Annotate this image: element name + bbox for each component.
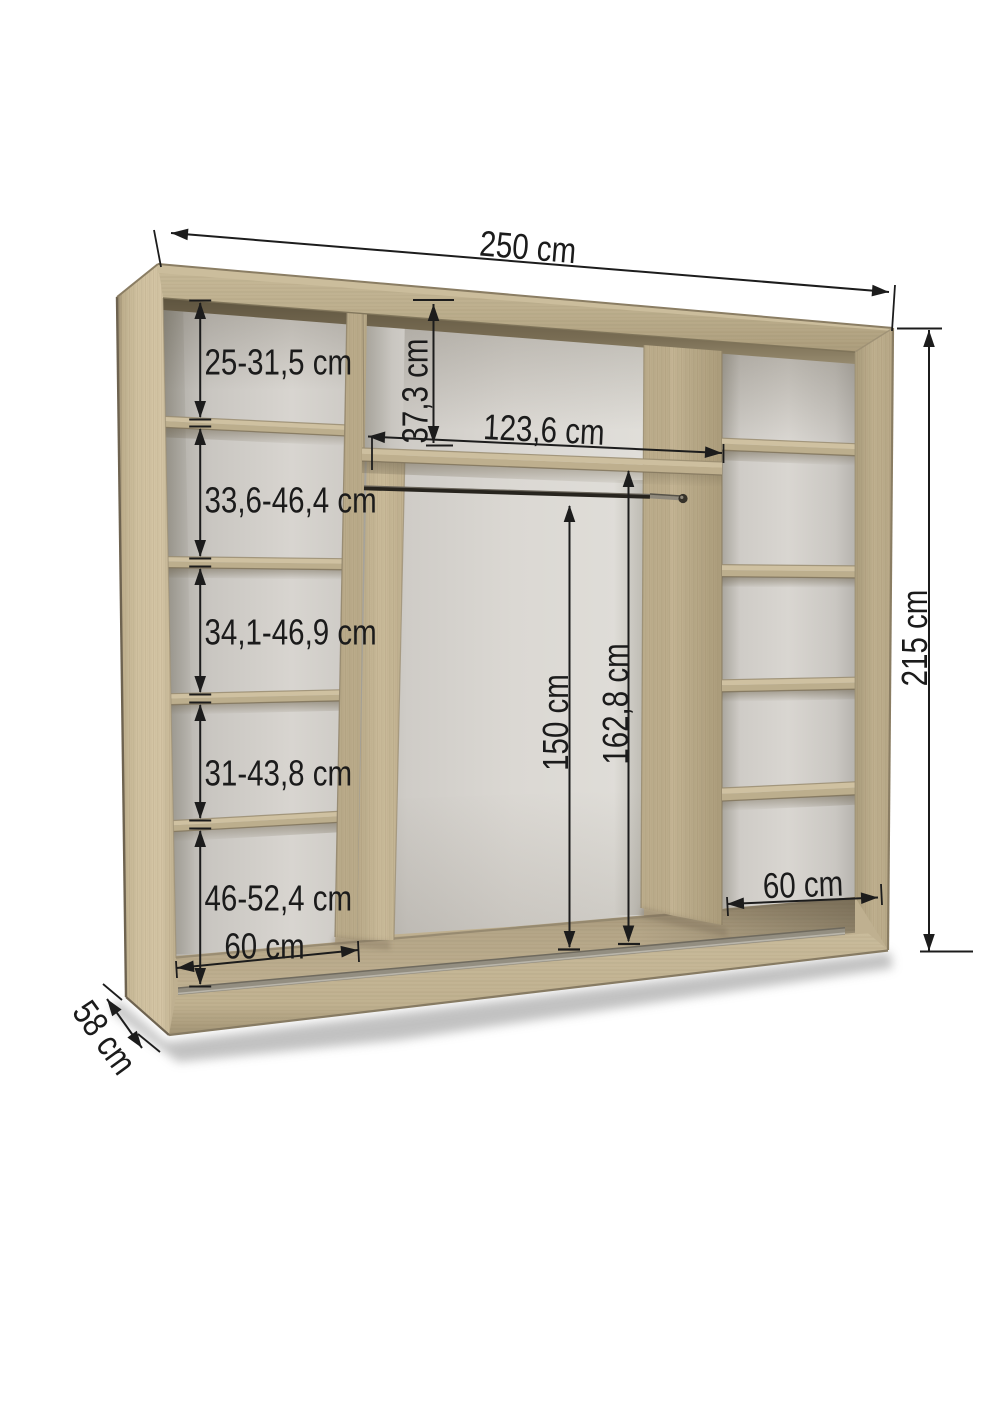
svg-text:215 cm: 215 cm <box>894 590 934 687</box>
svg-text:123,6 cm: 123,6 cm <box>482 406 605 452</box>
svg-text:150 cm: 150 cm <box>535 674 575 771</box>
svg-text:34,1-46,9 cm: 34,1-46,9 cm <box>205 612 377 652</box>
svg-text:33,6-46,4 cm: 33,6-46,4 cm <box>205 480 377 520</box>
svg-text:31-43,8 cm: 31-43,8 cm <box>205 753 353 793</box>
svg-text:25-31,5 cm: 25-31,5 cm <box>205 342 353 382</box>
svg-text:250 cm: 250 cm <box>478 223 578 271</box>
svg-text:46-52,4 cm: 46-52,4 cm <box>205 878 353 918</box>
svg-text:60 cm: 60 cm <box>762 863 844 906</box>
svg-text:162,8 cm: 162,8 cm <box>595 643 635 764</box>
svg-text:37,3 cm: 37,3 cm <box>395 339 435 444</box>
svg-text:60 cm: 60 cm <box>224 926 304 966</box>
